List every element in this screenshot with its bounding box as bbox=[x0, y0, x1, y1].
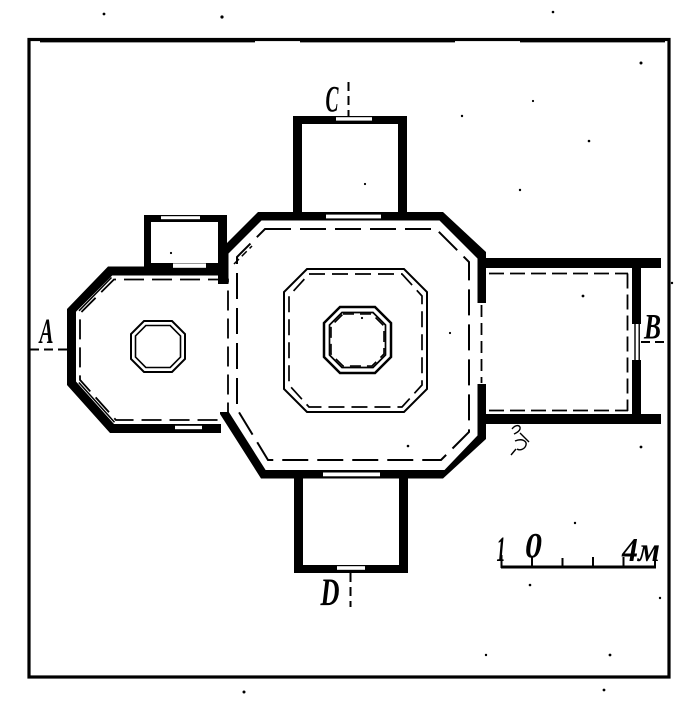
svg-text:D: D bbox=[320, 571, 340, 614]
svg-text:4м: 4м bbox=[621, 532, 660, 569]
svg-text:A: A bbox=[38, 311, 53, 351]
svg-text:1: 1 bbox=[497, 529, 506, 569]
svg-text:C: C bbox=[326, 80, 340, 121]
svg-text:0: 0 bbox=[525, 526, 542, 566]
svg-text:B: B bbox=[643, 307, 661, 347]
